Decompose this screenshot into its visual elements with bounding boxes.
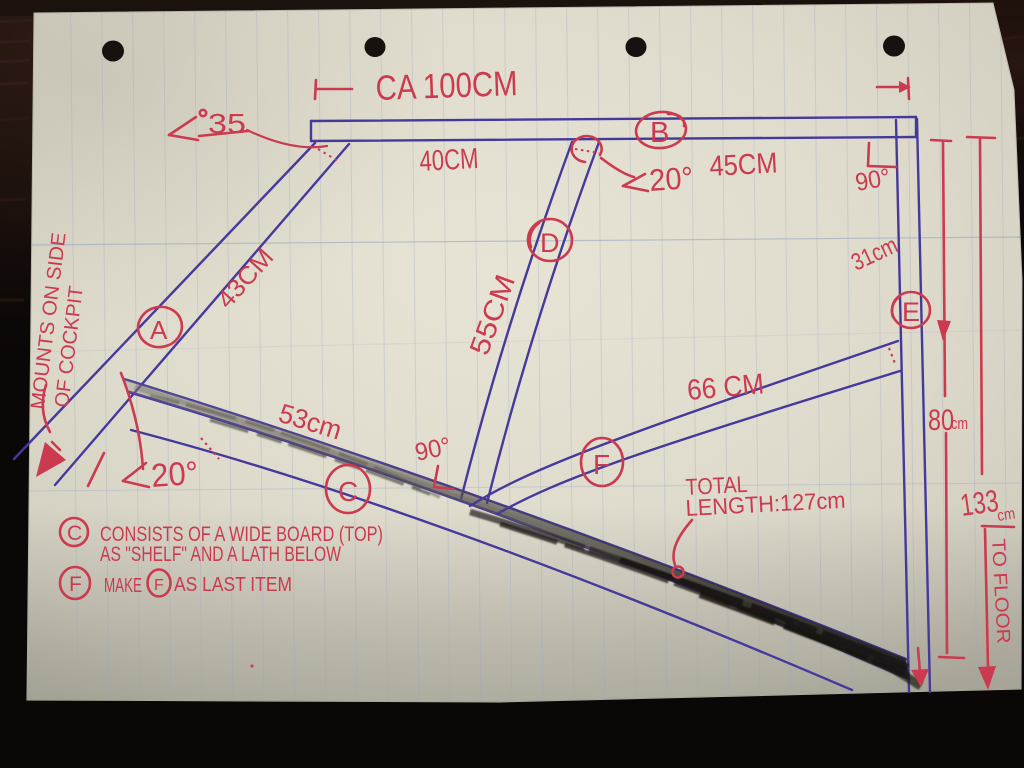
svg-text:90°: 90° (853, 163, 892, 197)
svg-text:AS LAST ITEM: AS LAST ITEM (174, 574, 292, 596)
svg-text:66 CM: 66 CM (686, 368, 765, 407)
svg-text:MAKE: MAKE (104, 575, 142, 597)
svg-text:C: C (67, 522, 82, 545)
svg-text:45CM: 45CM (709, 147, 779, 183)
svg-text:cm: cm (996, 506, 1016, 525)
svg-text:F: F (69, 573, 82, 596)
svg-text:cm: cm (951, 414, 968, 433)
svg-text:AS "SHELF" AND A LATH BELOW: AS "SHELF" AND A LATH BELOW (100, 543, 341, 566)
svg-text:20°: 20° (648, 160, 694, 198)
svg-text:E: E (902, 297, 920, 327)
svg-text:F: F (154, 577, 164, 594)
svg-text:20°: 20° (150, 454, 199, 494)
svg-text:35: 35 (208, 108, 246, 139)
svg-text:B: B (650, 117, 669, 149)
svg-text:CA 100CM: CA 100CM (375, 64, 518, 108)
svg-text:F: F (593, 449, 610, 480)
svg-text:D: D (540, 228, 560, 258)
svg-text:C: C (338, 476, 358, 507)
svg-text:A: A (150, 315, 168, 345)
svg-text:133: 133 (958, 483, 1001, 523)
svg-text:40CM: 40CM (419, 143, 480, 178)
